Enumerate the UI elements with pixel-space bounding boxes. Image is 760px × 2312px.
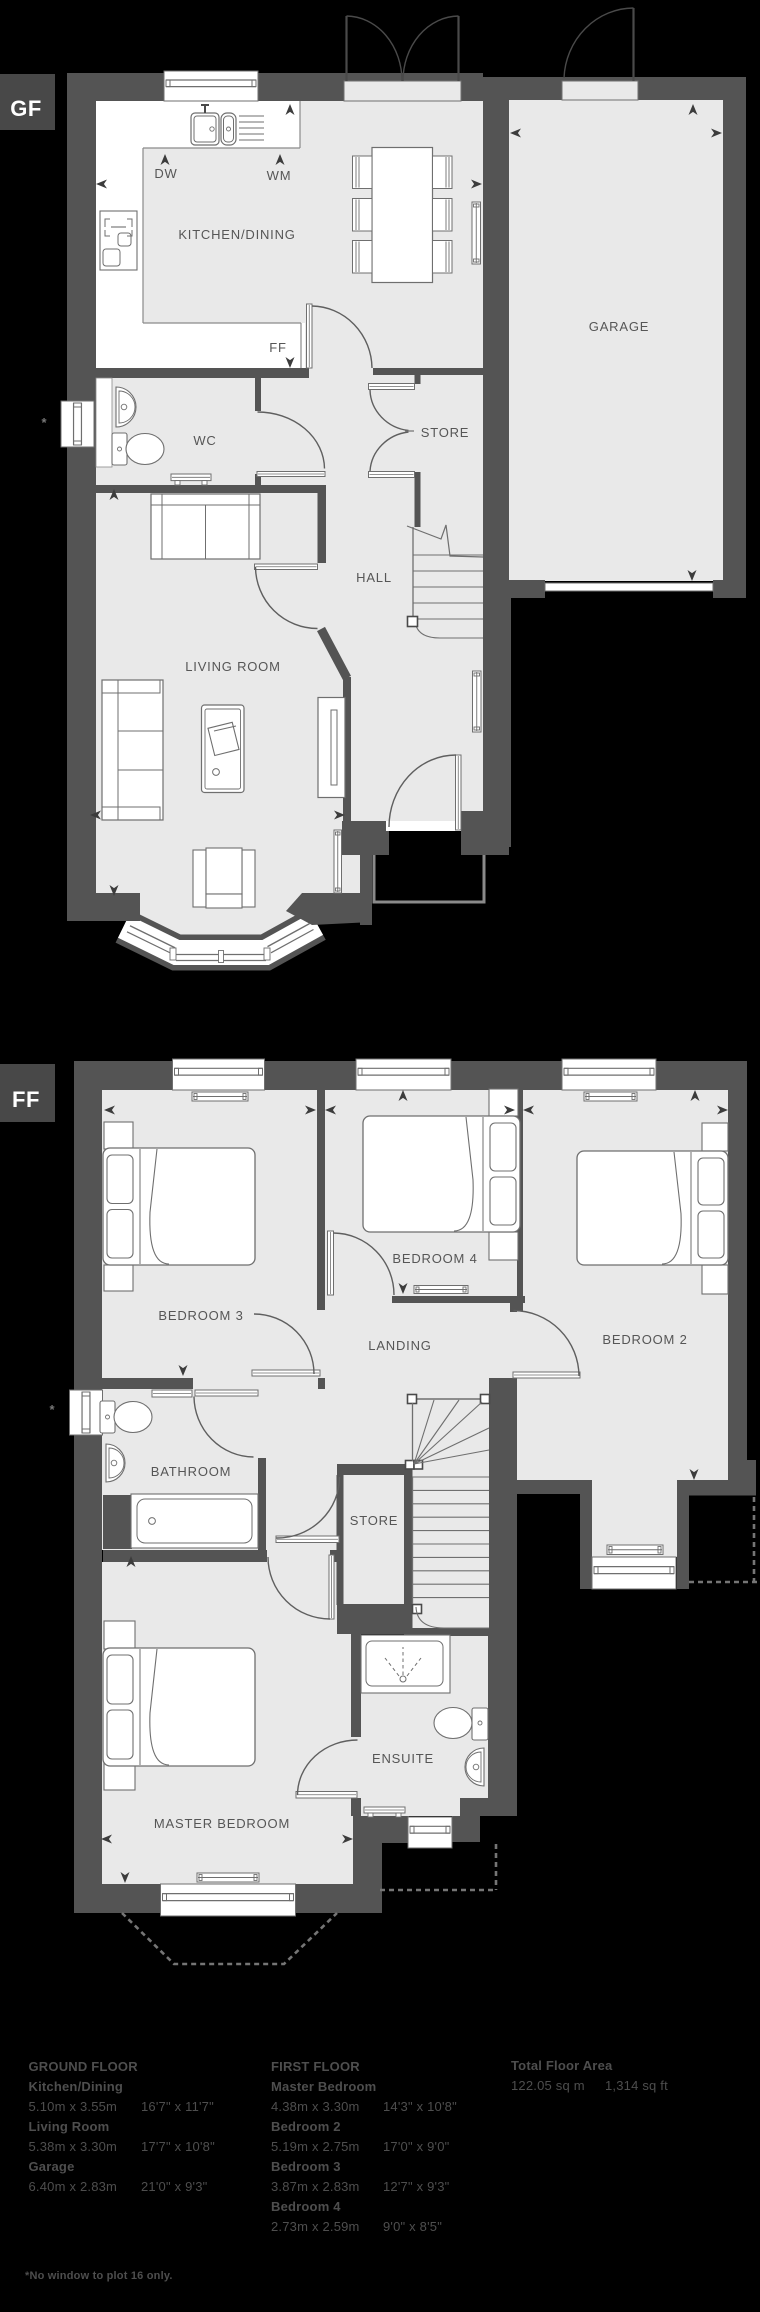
svg-text:FF: FF — [12, 1087, 40, 1112]
svg-text:GROUND FLOOR: GROUND FLOOR — [29, 2059, 139, 2074]
svg-text:FF: FF — [269, 340, 286, 355]
svg-text:LANDING: LANDING — [368, 1338, 431, 1353]
svg-text:4.38m x 3.30m: 4.38m x 3.30m — [271, 2099, 360, 2114]
svg-text:STORE: STORE — [350, 1513, 399, 1528]
svg-text:Bedroom 2: Bedroom 2 — [271, 2119, 341, 2134]
svg-text:12'7" x 9'3": 12'7" x 9'3" — [383, 2179, 450, 2194]
svg-text:2.73m x 2.59m: 2.73m x 2.59m — [271, 2219, 360, 2234]
svg-text:MASTER BEDROOM: MASTER BEDROOM — [154, 1816, 290, 1831]
svg-text:BATHROOM: BATHROOM — [151, 1464, 232, 1479]
svg-text:BEDROOM 3: BEDROOM 3 — [158, 1308, 243, 1323]
svg-text:17'0" x 9'0": 17'0" x 9'0" — [383, 2139, 450, 2154]
svg-text:14'3" x 10'8": 14'3" x 10'8" — [383, 2099, 457, 2114]
svg-text:1,314 sq ft: 1,314 sq ft — [605, 2078, 668, 2093]
svg-text:LIVING ROOM: LIVING ROOM — [185, 659, 280, 674]
svg-text:21'0" x 9'3": 21'0" x 9'3" — [141, 2179, 208, 2194]
svg-text:STORE: STORE — [421, 425, 470, 440]
svg-text:5.10m x 3.55m: 5.10m x 3.55m — [29, 2099, 118, 2114]
svg-text:HALL: HALL — [356, 570, 392, 585]
svg-text:*No window to plot 16 only.: *No window to plot 16 only. — [25, 2270, 173, 2282]
svg-text:6.40m x 2.83m: 6.40m x 2.83m — [29, 2179, 118, 2194]
svg-text:Living Room: Living Room — [29, 2119, 110, 2134]
svg-text:122.05 sq m: 122.05 sq m — [511, 2078, 585, 2093]
svg-text:17'7" x 10'8": 17'7" x 10'8" — [141, 2139, 215, 2154]
svg-text:BEDROOM 4: BEDROOM 4 — [392, 1251, 477, 1266]
svg-text:WM: WM — [267, 168, 292, 183]
svg-text:Bedroom 4: Bedroom 4 — [271, 2199, 341, 2214]
svg-text:Bedroom 3: Bedroom 3 — [271, 2159, 341, 2174]
svg-text:3.87m x 2.83m: 3.87m x 2.83m — [271, 2179, 360, 2194]
svg-text:WC: WC — [193, 433, 216, 448]
svg-text:9'0" x 8'5": 9'0" x 8'5" — [383, 2219, 442, 2234]
svg-text:Kitchen/Dining: Kitchen/Dining — [29, 2079, 124, 2094]
svg-text:DW: DW — [154, 166, 177, 181]
svg-text:FIRST FLOOR: FIRST FLOOR — [271, 2059, 360, 2074]
svg-text:Total Floor Area: Total Floor Area — [511, 2058, 613, 2073]
svg-text:BEDROOM 2: BEDROOM 2 — [602, 1332, 687, 1347]
svg-text:Master Bedroom: Master Bedroom — [271, 2079, 376, 2094]
svg-text:16'7" x 11'7": 16'7" x 11'7" — [141, 2099, 214, 2114]
svg-text:Garage: Garage — [29, 2159, 75, 2174]
svg-text:5.19m x 2.75m: 5.19m x 2.75m — [271, 2139, 360, 2154]
svg-text:KITCHEN/DINING: KITCHEN/DINING — [178, 227, 295, 242]
svg-text:5.38m x 3.30m: 5.38m x 3.30m — [29, 2139, 118, 2154]
svg-text:GF: GF — [10, 96, 42, 121]
svg-text:ENSUITE: ENSUITE — [372, 1751, 434, 1766]
svg-text:GARAGE: GARAGE — [589, 319, 649, 334]
